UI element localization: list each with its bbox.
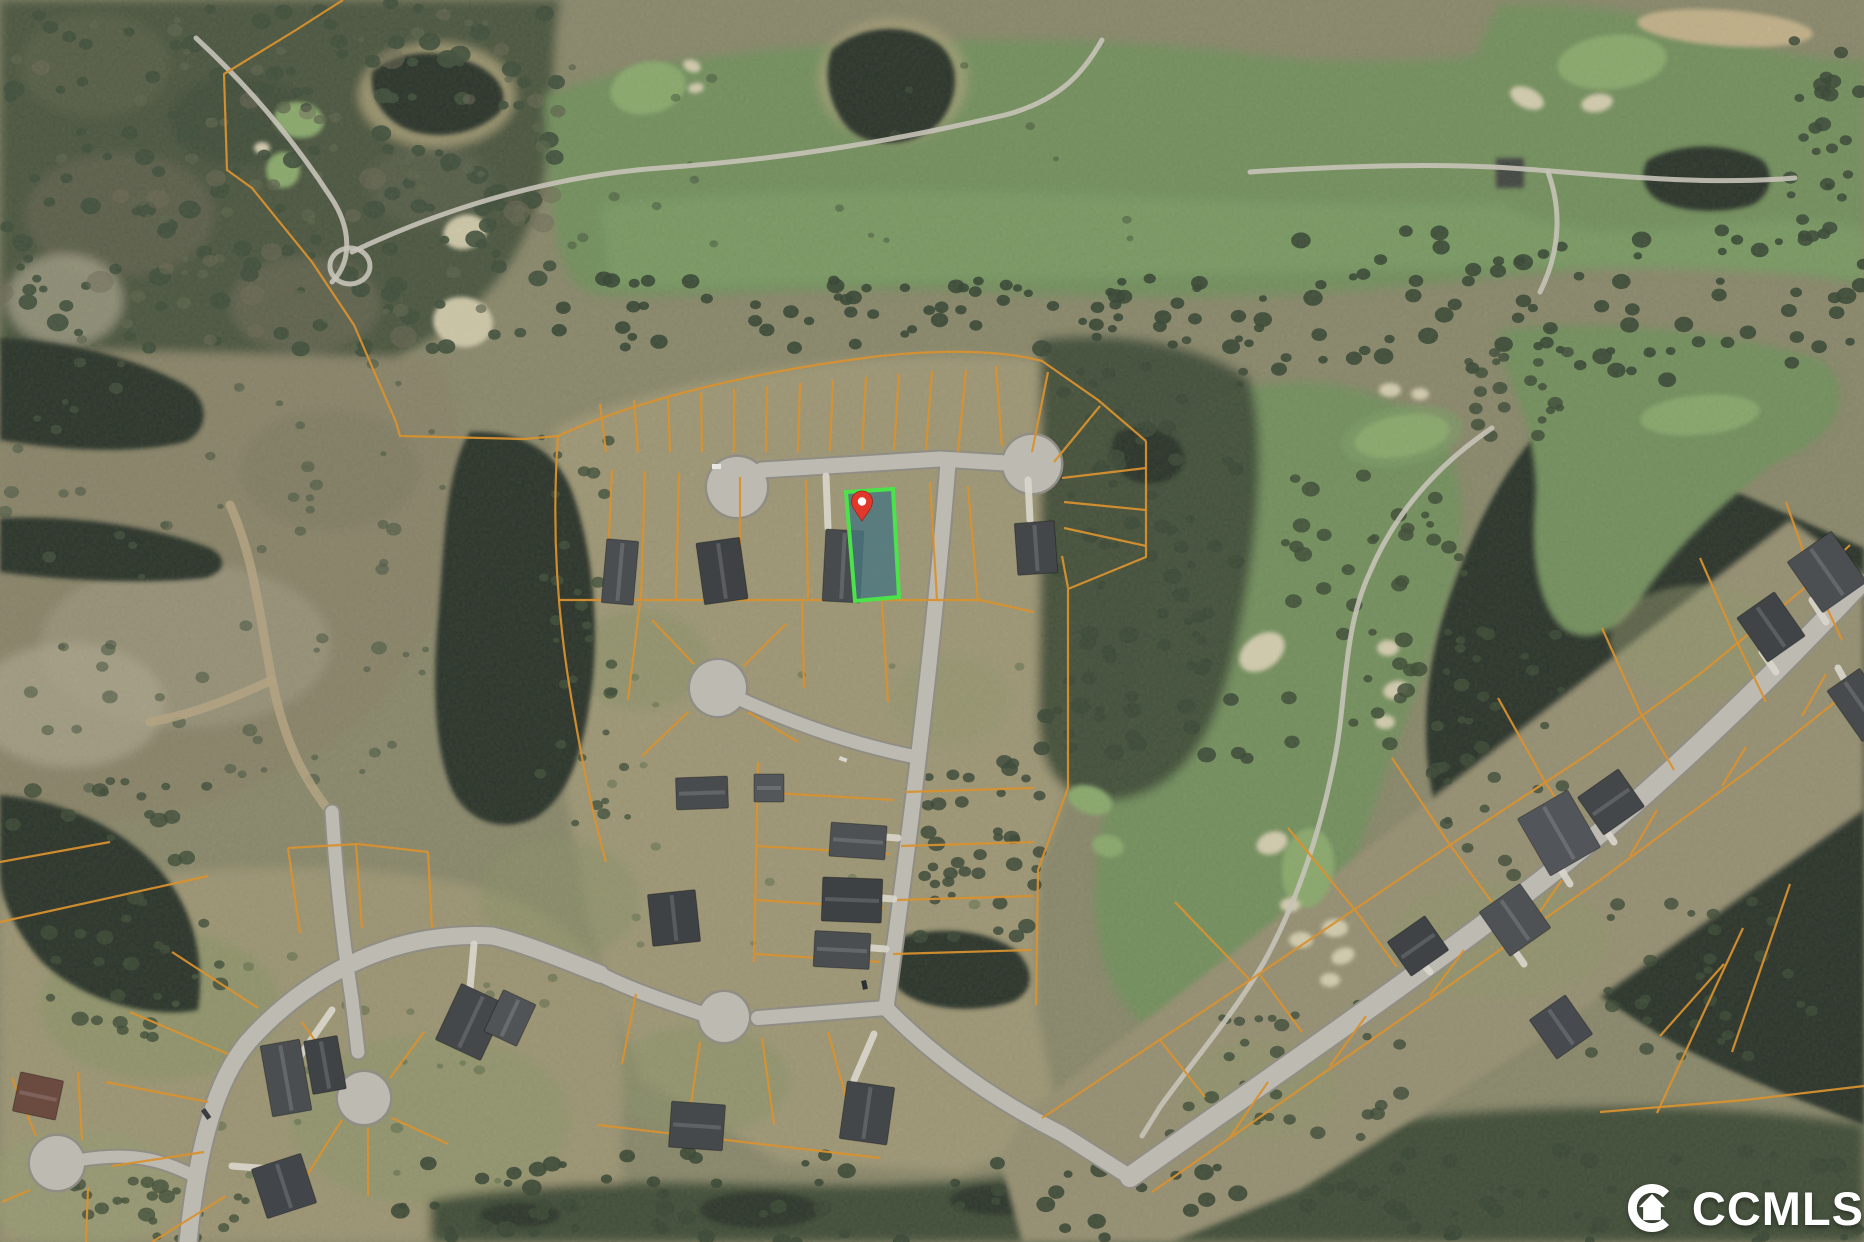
house <box>601 539 638 606</box>
house <box>12 1072 63 1120</box>
ccmls-logo-icon <box>1624 1180 1680 1236</box>
watermark: CCMLS <box>1624 1180 1864 1236</box>
house <box>839 1081 895 1145</box>
house <box>675 776 728 810</box>
house <box>696 537 748 605</box>
house <box>1014 521 1058 576</box>
house <box>829 822 887 860</box>
house <box>647 890 700 947</box>
aerial-map[interactable]: CCMLS <box>0 0 1864 1242</box>
house <box>754 774 784 802</box>
house <box>668 1101 725 1151</box>
watermark-text: CCMLS <box>1692 1181 1864 1236</box>
house <box>821 877 882 923</box>
house <box>813 931 871 970</box>
